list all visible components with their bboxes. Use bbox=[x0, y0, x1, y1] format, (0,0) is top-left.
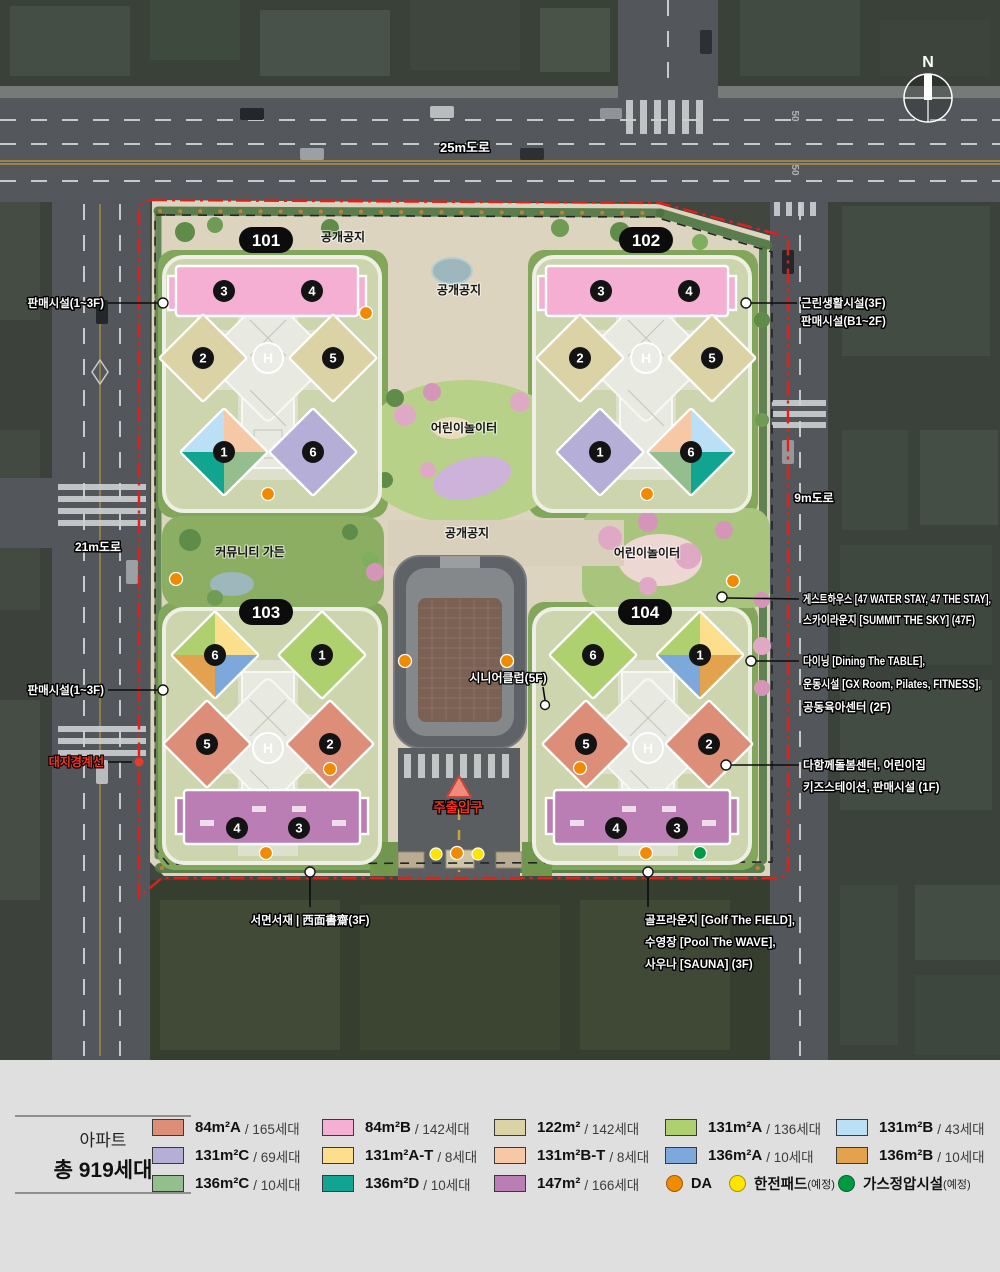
label-open-space-3: 공개공지 bbox=[445, 525, 489, 540]
legend-item: 131m²B-T/ 8세대 bbox=[494, 1147, 649, 1164]
svg-text:4: 4 bbox=[233, 821, 241, 836]
callout-golf-2: 수영장 [Pool The WAVE], bbox=[645, 935, 776, 949]
label-open-space-2: 공개공지 bbox=[437, 282, 481, 297]
svg-text:1: 1 bbox=[596, 445, 603, 460]
legend-item: 131m²A-T/ 8세대 bbox=[322, 1147, 477, 1164]
svg-text:4: 4 bbox=[612, 821, 620, 836]
legend-item: 131m²B/ 43세대 bbox=[836, 1119, 985, 1136]
kepco-pad-swatch bbox=[729, 1175, 746, 1192]
da-marker bbox=[451, 847, 464, 860]
legend-marker-gas: 가스정압시설(예정) bbox=[838, 1175, 971, 1192]
svg-text:5: 5 bbox=[329, 351, 336, 366]
da-marker bbox=[260, 847, 273, 860]
svg-text:6: 6 bbox=[687, 445, 694, 460]
legend-item: 147m²/ 166세대 bbox=[494, 1175, 639, 1192]
svg-text:5: 5 bbox=[582, 737, 589, 752]
svg-text:4: 4 bbox=[685, 284, 693, 299]
kepco-pad-marker bbox=[430, 848, 442, 860]
block-103: H 6 1 5 2 4 3 103 bbox=[163, 599, 380, 863]
svg-text:1: 1 bbox=[318, 648, 325, 663]
block-102: H 3 4 2 5 1 6 102 bbox=[534, 227, 756, 511]
da-marker bbox=[727, 575, 740, 588]
da-marker-swatch bbox=[666, 1175, 683, 1192]
legend-item: 84m²B/ 142세대 bbox=[322, 1119, 470, 1136]
legend-swatch bbox=[494, 1119, 526, 1136]
da-marker bbox=[399, 655, 412, 668]
legend-swatch bbox=[836, 1147, 868, 1164]
legend-item: 84m²A/ 165세대 bbox=[152, 1119, 300, 1136]
site-plan-page: 50 50 bbox=[0, 0, 1000, 1272]
legend-panel: 아파트 총 919세대 84m²A/ 165세대 131m²C/ 69세대 13… bbox=[0, 1060, 1000, 1272]
legend-swatch bbox=[665, 1119, 697, 1136]
legend-item: 136m²D/ 10세대 bbox=[322, 1175, 471, 1192]
gas-swatch bbox=[838, 1175, 855, 1192]
kepco-pad-marker bbox=[472, 848, 484, 860]
svg-text:5: 5 bbox=[708, 351, 715, 366]
svg-text:6: 6 bbox=[589, 648, 596, 663]
legend-item: 131m²C/ 69세대 bbox=[152, 1147, 301, 1164]
label-main-entrance: 주출입구 bbox=[433, 799, 483, 815]
da-marker bbox=[170, 573, 183, 586]
svg-text:3: 3 bbox=[597, 284, 604, 299]
svg-text:5: 5 bbox=[203, 737, 210, 752]
block-101: H 3 4 2 5 1 6 101 bbox=[159, 227, 380, 511]
callout-study: 서면서재 | 西面書齋(3F) bbox=[250, 913, 369, 927]
label-playground-1: 어린이놀이터 bbox=[431, 420, 497, 435]
svg-text:1: 1 bbox=[220, 445, 227, 460]
svg-text:102: 102 bbox=[632, 231, 660, 250]
svg-text:104: 104 bbox=[631, 603, 660, 622]
callout-guesthouse-2: 스카이라운지 [SUMMIT THE SKY] (47F) bbox=[803, 613, 975, 627]
da-marker bbox=[324, 763, 337, 776]
legend-title-line2: 총 919세대 bbox=[54, 1154, 153, 1184]
building-147 bbox=[184, 790, 360, 844]
legend-swatch bbox=[665, 1147, 697, 1164]
label-open-space-1: 공개공지 bbox=[321, 229, 365, 244]
da-marker bbox=[360, 307, 373, 320]
helipad-mark: H bbox=[643, 740, 653, 756]
label-community-garden: 커뮤니티 가든 bbox=[215, 544, 285, 559]
callout-care-2: 키즈스테이션, 판매시설 (1F) bbox=[803, 780, 940, 794]
svg-text:101: 101 bbox=[252, 231, 280, 250]
road-label-9m: 9m도로 bbox=[794, 491, 833, 505]
helipad-mark: H bbox=[263, 350, 273, 366]
callout-golf-3: 사우나 [SAUNA] (3F) bbox=[645, 957, 753, 971]
svg-text:1: 1 bbox=[696, 648, 703, 663]
parking-structure bbox=[394, 556, 526, 748]
legend-swatch bbox=[152, 1119, 184, 1136]
road-label-25m: 25m도로 bbox=[440, 140, 490, 155]
callout-neighborhood-2: 판매시설(B1~2F) bbox=[801, 314, 886, 328]
svg-text:2: 2 bbox=[199, 351, 206, 366]
svg-text:3: 3 bbox=[673, 821, 680, 836]
road-label-21m: 21m도로 bbox=[75, 540, 121, 554]
callout-retail-lower: 판매시설(1~3F) bbox=[27, 683, 104, 697]
north-pointer bbox=[924, 74, 932, 100]
road-speed-mark: 50 bbox=[789, 164, 800, 176]
callout-guesthouse-1: 게스트하우스 [47 WATER STAY, 47 THE STAY], bbox=[803, 592, 991, 606]
callout-care-1: 다함께돌봄센터, 어린이집 bbox=[803, 758, 926, 772]
legend-item: 136m²B/ 10세대 bbox=[836, 1147, 985, 1164]
svg-text:3: 3 bbox=[220, 284, 227, 299]
svg-text:2: 2 bbox=[705, 737, 712, 752]
legend-marker-da: DA bbox=[666, 1175, 712, 1192]
da-marker bbox=[641, 488, 654, 501]
compass-n-label: N bbox=[922, 54, 934, 71]
legend-swatch bbox=[322, 1119, 354, 1136]
legend-item: 131m²A/ 136세대 bbox=[665, 1119, 821, 1136]
legend-item: 136m²C/ 10세대 bbox=[152, 1175, 301, 1192]
legend-swatch bbox=[494, 1175, 526, 1192]
legend-item: 136m²A/ 10세대 bbox=[665, 1147, 814, 1164]
callout-dining-2: 운동시설 [GX Room, Pilates, FITNESS], bbox=[803, 677, 981, 691]
callout-dining-3: 공동육아센터 (2F) bbox=[803, 700, 891, 714]
site-plan-map: 50 50 bbox=[0, 0, 1000, 1060]
road-speed-mark: 50 bbox=[789, 110, 800, 122]
svg-text:6: 6 bbox=[309, 445, 316, 460]
building-84B bbox=[546, 266, 728, 316]
legend-swatch bbox=[322, 1147, 354, 1164]
callout-golf-1: 골프라운지 [Golf The FIELD], bbox=[645, 913, 795, 927]
svg-text:2: 2 bbox=[576, 351, 583, 366]
label-senior-club: 시니어클럽(5F) bbox=[469, 670, 546, 685]
da-marker bbox=[640, 847, 653, 860]
callout-site-boundary: 대지경계선 bbox=[49, 754, 104, 769]
svg-text:4: 4 bbox=[308, 284, 316, 299]
legend-swatch bbox=[152, 1175, 184, 1192]
legend-title-line1: 아파트 bbox=[80, 1126, 127, 1151]
building-147 bbox=[554, 790, 730, 844]
legend-swatch bbox=[322, 1175, 354, 1192]
svg-text:6: 6 bbox=[211, 648, 218, 663]
callout-retail-upper: 판매시설(1~3F) bbox=[27, 296, 104, 310]
legend-swatch bbox=[836, 1119, 868, 1136]
da-marker bbox=[262, 488, 275, 501]
svg-text:2: 2 bbox=[326, 737, 333, 752]
label-playground-2: 어린이놀이터 bbox=[614, 545, 680, 560]
callout-neighborhood-1: 근린생활시설(3F) bbox=[801, 296, 886, 310]
legend-item: 122m²/ 142세대 bbox=[494, 1119, 639, 1136]
svg-text:3: 3 bbox=[295, 821, 302, 836]
gas-station-marker bbox=[694, 847, 707, 860]
da-marker bbox=[574, 762, 587, 775]
building-84B bbox=[176, 266, 358, 316]
legend-marker-kepco-pad: 한전패드(예정) bbox=[729, 1175, 835, 1192]
helipad-mark: H bbox=[263, 740, 273, 756]
da-marker bbox=[501, 655, 514, 668]
helipad-mark: H bbox=[641, 350, 651, 366]
block-104: H 6 1 5 2 4 3 104 bbox=[534, 599, 753, 863]
svg-text:103: 103 bbox=[252, 603, 280, 622]
legend-swatch bbox=[494, 1147, 526, 1164]
legend-swatch bbox=[152, 1147, 184, 1164]
callout-dining-1: 다이닝 [Dining The TABLE], bbox=[803, 654, 925, 668]
